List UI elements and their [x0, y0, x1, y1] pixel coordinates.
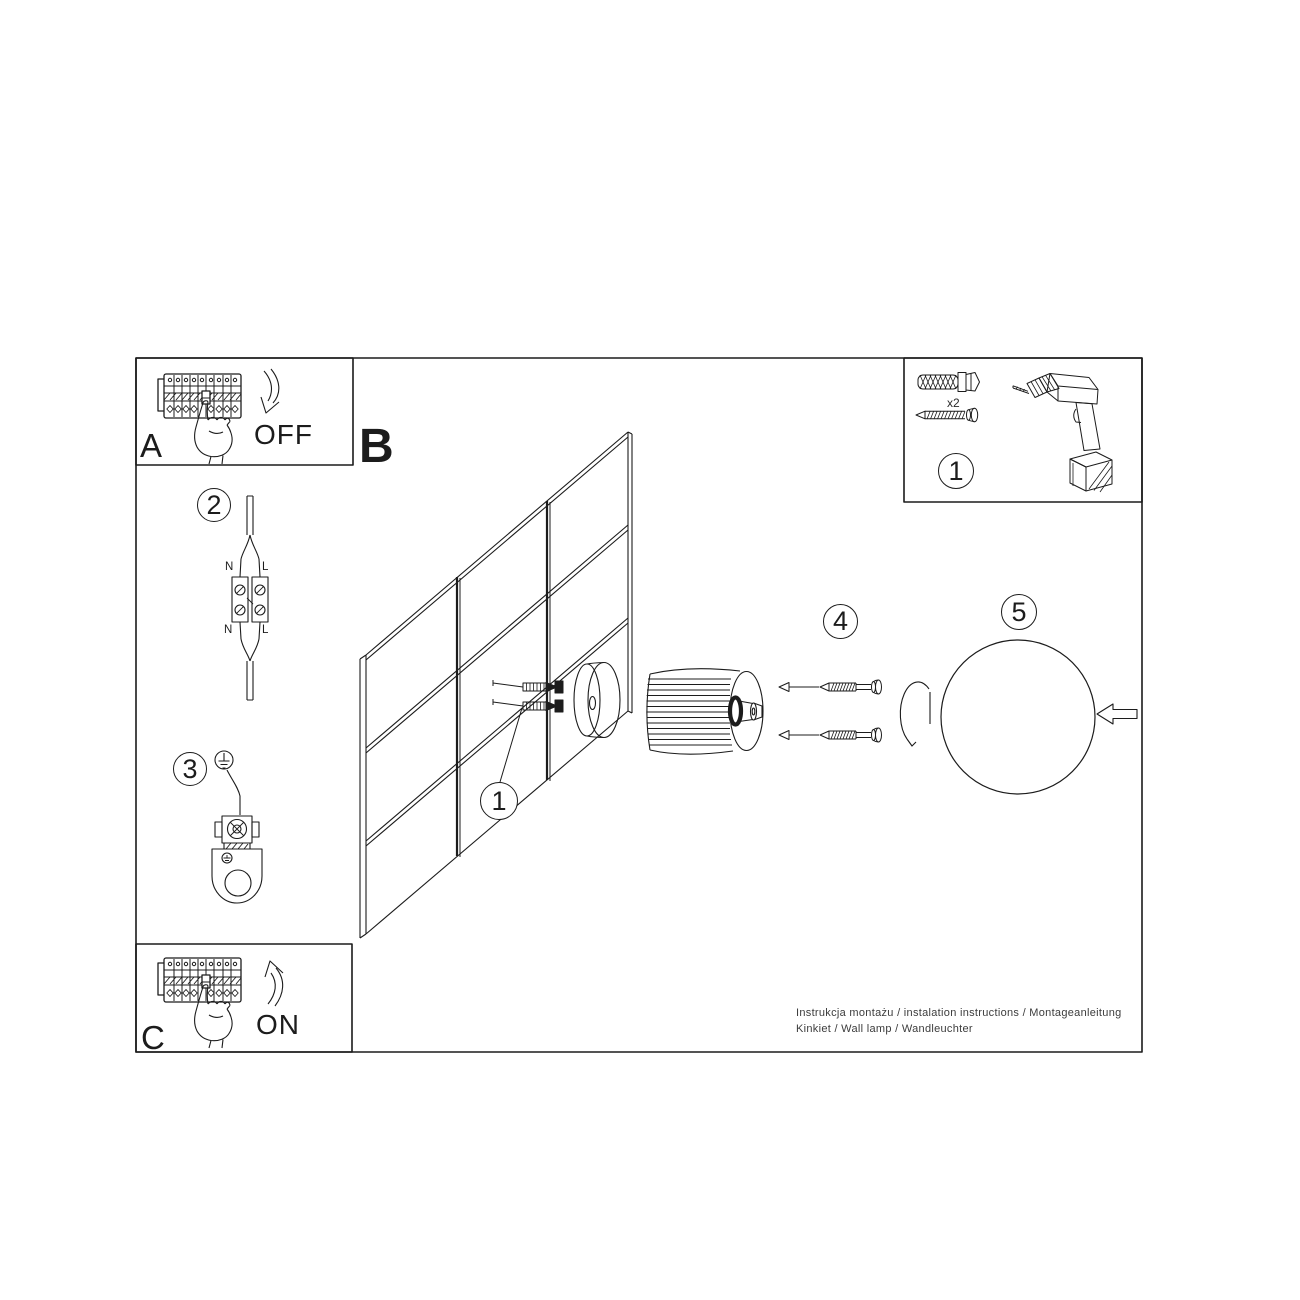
diagram-line-art: [0, 0, 1300, 1300]
wire-connector-illustration: [232, 496, 268, 700]
step-3-badge: 3: [173, 752, 207, 786]
instruction-sheet: B A OFF C ON 2 3 1 4 5 1 N L N L x2 Inst…: [0, 0, 1300, 1300]
panel-a-label: A: [140, 429, 162, 462]
insert-arrows-icon: [779, 683, 819, 740]
wall-illustration: [360, 432, 632, 938]
frame-borders: [136, 358, 1142, 1052]
wire-l-bottom-label: L: [262, 625, 268, 637]
step-1-badge: 1: [480, 782, 518, 820]
ground-terminal-illustration: [212, 751, 262, 903]
panel-c-label: C: [141, 1021, 165, 1054]
canopy-illustration: [574, 663, 620, 738]
section-b-label: B: [359, 423, 394, 471]
wire-l-top-label: L: [262, 562, 268, 574]
footer-line-2: Kinkiet / Wall lamp / Wandleuchter: [796, 1022, 1122, 1038]
drill-icon: [1013, 374, 1112, 493]
step-2-badge: 2: [197, 488, 231, 522]
breaker-on-label: ON: [256, 1011, 300, 1039]
mounting-screws-illustration: [820, 680, 882, 742]
step-5-badge: 5: [1001, 594, 1037, 630]
arrow-down-icon: [261, 369, 279, 413]
footer-caption: Instrukcja montażu / instalation instruc…: [796, 1006, 1122, 1037]
wire-n-bottom-label: N: [224, 625, 232, 637]
breaker-off-label: OFF: [254, 421, 313, 449]
step-4-badge: 4: [823, 604, 858, 639]
lamp-body-illustration: [646, 669, 763, 755]
tools-step-badge: 1: [938, 453, 974, 489]
arrow-up-icon: [265, 961, 283, 1006]
wire-n-top-label: N: [225, 562, 233, 574]
glass-ball-illustration: [900, 640, 1137, 794]
plug-quantity-label: x2: [947, 396, 960, 410]
wall-plugs-illustration: [493, 680, 563, 782]
footer-line-1: Instrukcja montażu / instalation instruc…: [796, 1006, 1122, 1022]
